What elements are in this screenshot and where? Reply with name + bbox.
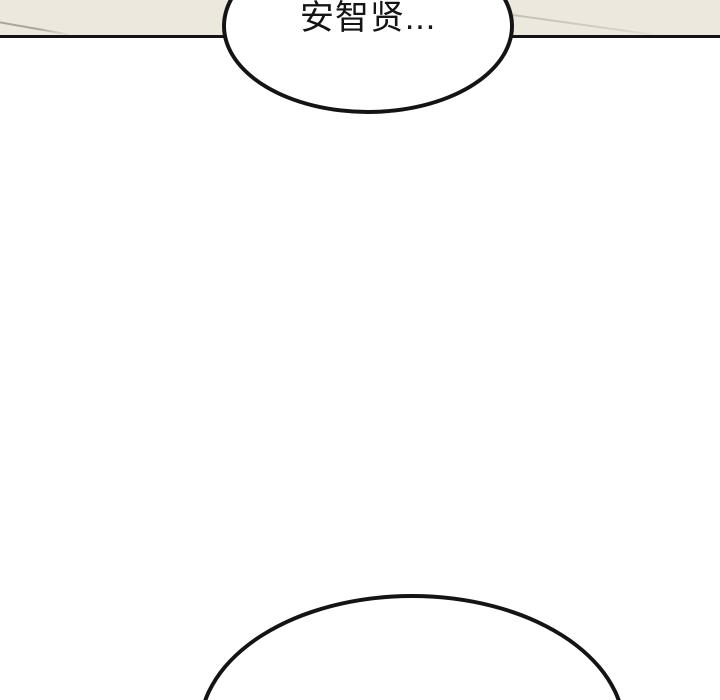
speech-bubble-top: 安智贤... — [222, 0, 514, 114]
speech-bubble-bottom — [198, 594, 626, 700]
background-crease-line-left — [0, 21, 71, 36]
webtoon-page: 安智贤... — [0, 0, 720, 700]
speech-bubble-top-text: 安智贤... — [226, 1, 510, 37]
background-crease-line-right — [513, 14, 664, 37]
